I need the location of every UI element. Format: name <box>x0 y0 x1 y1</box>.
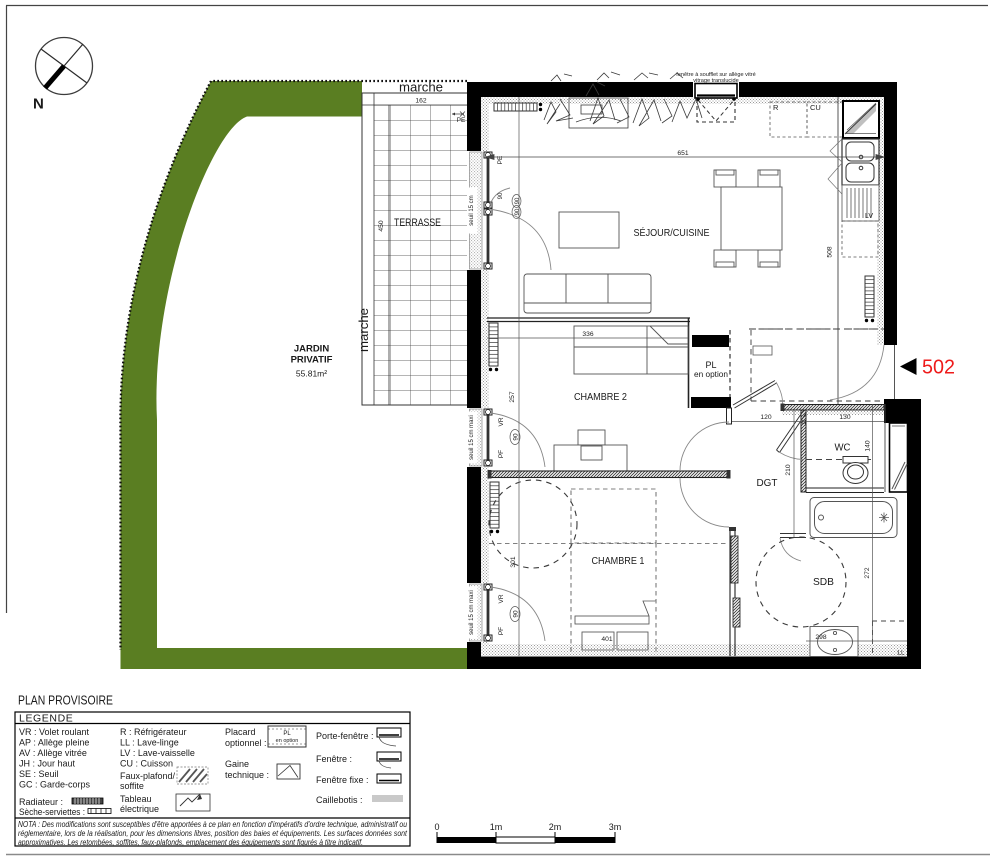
svg-text:LV: LV <box>865 213 873 220</box>
svg-text:3m: 3m <box>609 822 622 832</box>
svg-text:PL: PL <box>705 360 716 370</box>
svg-text:AV : Allège vitrée: AV : Allège vitrée <box>19 748 87 758</box>
svg-text:272: 272 <box>864 567 871 578</box>
svg-text:Faux-plafond/: Faux-plafond/ <box>120 771 176 781</box>
svg-text:130: 130 <box>839 414 850 421</box>
svg-text:301: 301 <box>510 556 517 567</box>
svg-text:PRIVATIF: PRIVATIF <box>291 355 333 366</box>
svg-text:optionnel :: optionnel : <box>225 738 267 748</box>
svg-text:en option: en option <box>694 370 728 379</box>
svg-text:Fenêtre :: Fenêtre : <box>316 754 352 764</box>
svg-text:réglementaire, lors de la réal: réglementaire, lors de la réalisation, p… <box>18 829 408 838</box>
svg-text:CHAMBRE 1: CHAMBRE 1 <box>592 556 645 567</box>
svg-text:R: R <box>773 103 779 112</box>
svg-text:TERRASSE: TERRASSE <box>394 217 441 229</box>
svg-text:JH : Jour haut: JH : Jour haut <box>19 759 76 769</box>
svg-text:140: 140 <box>865 440 872 451</box>
svg-text:seuil 15 cm maxi: seuil 15 cm maxi <box>469 415 475 460</box>
svg-text:N: N <box>33 96 44 113</box>
svg-text:seuil 15 cm: seuil 15 cm <box>469 195 475 225</box>
svg-text:PE: PE <box>457 117 466 124</box>
svg-text:PLAN PROVISOIRE: PLAN PROVISOIRE <box>18 694 113 708</box>
svg-text:0: 0 <box>434 822 439 832</box>
svg-text:LL : Lave-linge: LL : Lave-linge <box>120 738 179 748</box>
svg-text:GC : Garde-corps: GC : Garde-corps <box>19 780 91 790</box>
svg-text:PF: PF <box>498 450 505 458</box>
svg-text:120: 120 <box>760 414 771 421</box>
svg-text:90: 90 <box>513 433 520 441</box>
svg-text:PL: PL <box>283 731 291 737</box>
svg-text:marche: marche <box>399 80 443 95</box>
svg-text:marche: marche <box>356 308 371 352</box>
svg-text:Gaine: Gaine <box>225 759 249 769</box>
svg-text:LV : Lave-vaisselle: LV : Lave-vaisselle <box>120 748 195 758</box>
svg-text:VR: VR <box>498 594 505 603</box>
svg-text:502: 502 <box>922 356 955 379</box>
svg-text:336: 336 <box>582 331 593 338</box>
svg-text:en option: en option <box>276 738 299 744</box>
svg-text:soffite: soffite <box>120 781 144 791</box>
svg-text:90: 90 <box>513 610 520 618</box>
svg-text:90: 90 <box>498 192 504 199</box>
svg-text:Fenêtre fixe :: Fenêtre fixe : <box>316 775 369 785</box>
svg-text:AP : Allège pleine: AP : Allège pleine <box>19 738 89 748</box>
svg-text:Sèche-serviettes :: Sèche-serviettes : <box>19 807 85 817</box>
svg-text:Tableau: Tableau <box>120 794 152 804</box>
svg-text:seuil 15 cm maxi: seuil 15 cm maxi <box>469 590 475 635</box>
svg-text:NOTA : Des modifications sont: NOTA : Des modifications sont susceptibl… <box>18 820 408 829</box>
svg-text:Placard: Placard <box>225 727 256 737</box>
svg-text:90: 90 <box>515 197 521 204</box>
svg-text:508: 508 <box>827 246 834 257</box>
svg-text:1m: 1m <box>490 822 503 832</box>
svg-text:SE : Seuil: SE : Seuil <box>19 769 59 779</box>
svg-text:2m: 2m <box>549 822 562 832</box>
svg-text:LL: LL <box>897 650 905 657</box>
svg-text:DGT: DGT <box>757 478 778 489</box>
svg-text:11: 11 <box>801 420 806 426</box>
svg-text:JARDIN: JARDIN <box>294 344 330 355</box>
svg-text:90: 90 <box>515 208 521 215</box>
svg-text:VR : Volet roulant: VR : Volet roulant <box>19 727 90 737</box>
svg-text:Caillebotis :: Caillebotis : <box>316 795 363 805</box>
svg-text:210: 210 <box>785 464 792 475</box>
svg-text:vitrage translucide: vitrage translucide <box>693 78 738 84</box>
svg-text:LEGENDE: LEGENDE <box>19 713 73 725</box>
svg-text:651: 651 <box>677 150 688 157</box>
svg-text:CHAMBRE 2: CHAMBRE 2 <box>574 392 627 403</box>
svg-text:257: 257 <box>509 391 516 402</box>
svg-text:approximatives. Les retombées,: approximatives. Les retombées, soffites,… <box>18 838 363 847</box>
svg-text:électrique: électrique <box>120 804 159 814</box>
svg-text:CU: CU <box>810 103 821 112</box>
svg-text:CU : Cuisson: CU : Cuisson <box>120 759 173 769</box>
svg-text:WC: WC <box>835 443 851 454</box>
svg-text:SDB: SDB <box>813 577 834 588</box>
svg-text:401: 401 <box>601 636 612 643</box>
svg-text:VR: VR <box>498 417 505 426</box>
svg-text:450: 450 <box>378 220 385 231</box>
svg-text:PF: PF <box>498 627 505 635</box>
svg-text:162: 162 <box>415 98 426 105</box>
svg-text:SÉJOUR/CUISINE: SÉJOUR/CUISINE <box>634 226 710 239</box>
svg-text:298: 298 <box>815 634 826 641</box>
svg-text:Porte-fenêtre :: Porte-fenêtre : <box>316 731 374 741</box>
svg-text:Radiateur :: Radiateur : <box>19 797 63 807</box>
svg-text:R : Réfrigérateur: R : Réfrigérateur <box>120 727 187 737</box>
svg-text:technique :: technique : <box>225 770 269 780</box>
svg-text:PE: PE <box>497 155 504 164</box>
svg-text:55.81m²: 55.81m² <box>296 369 327 379</box>
